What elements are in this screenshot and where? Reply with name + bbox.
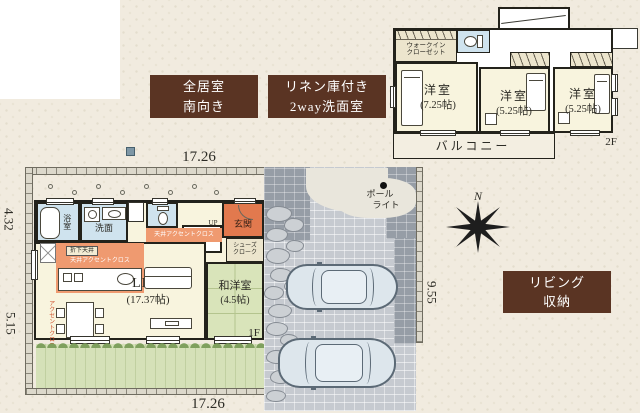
chair-icon bbox=[56, 308, 65, 318]
window-icon bbox=[611, 98, 618, 116]
car-mirror-icon bbox=[317, 308, 322, 312]
stairs-1f-up-label: UP bbox=[204, 220, 222, 228]
badge-south-line2: 南向き bbox=[183, 97, 225, 117]
washroom-label: 洗面 bbox=[88, 224, 120, 234]
car-windshield bbox=[305, 342, 314, 384]
car-mirror-icon bbox=[311, 386, 316, 390]
bed-icon bbox=[401, 70, 423, 126]
car-mirror-icon bbox=[311, 336, 316, 340]
site-fence-bottom bbox=[25, 388, 303, 395]
japanese-room-name: 和洋室 bbox=[212, 280, 258, 292]
hall-ceiling-accent-label: 天井アクセントクロス bbox=[146, 232, 222, 239]
entrance-label: 玄関 bbox=[224, 220, 262, 230]
shoe-closet-label: シューズ クローク bbox=[227, 243, 263, 256]
toilet-2f bbox=[457, 30, 490, 53]
dimension-left-lower: 5.15 bbox=[3, 300, 17, 346]
floor2-label: 2F bbox=[600, 136, 622, 148]
car-rear-window bbox=[365, 268, 374, 306]
washer-drum-icon bbox=[88, 210, 97, 219]
car-roof bbox=[315, 344, 363, 382]
window-icon bbox=[570, 130, 600, 136]
washroom-1f bbox=[80, 202, 128, 242]
top-left-white-area bbox=[0, 0, 120, 99]
legend-square-icon bbox=[126, 147, 135, 156]
window-icon bbox=[611, 74, 618, 92]
dimension-left-upper: 4.32 bbox=[1, 196, 15, 242]
japanese-room-size: (4.5帖) bbox=[214, 295, 256, 306]
toilet-icon bbox=[157, 206, 169, 211]
fridge-space-icon bbox=[40, 243, 56, 263]
closet-hatch-icon bbox=[396, 31, 456, 40]
closet-bedroom2 bbox=[510, 52, 550, 67]
bathroom-label: 浴室 bbox=[62, 208, 71, 236]
site-fence-right bbox=[416, 167, 423, 343]
plant-icon bbox=[48, 184, 53, 189]
walk-in-closet: ウォークイン クローゼット bbox=[395, 30, 457, 62]
bathtub-icon bbox=[40, 207, 60, 239]
dimension-top: 17.26 bbox=[149, 149, 249, 166]
bedroom3-name: 洋室 bbox=[560, 88, 606, 101]
plant-icon bbox=[72, 190, 77, 195]
window-icon bbox=[92, 198, 114, 205]
plant-icon bbox=[144, 184, 149, 189]
plant-icon bbox=[192, 184, 197, 189]
toilet-1f bbox=[146, 202, 178, 228]
stove-icon bbox=[63, 273, 72, 282]
dimension-right: 9.55 bbox=[424, 268, 438, 316]
site-fence-left bbox=[25, 167, 33, 395]
lowered-ceiling-label: 折下天井 bbox=[67, 248, 97, 255]
bedroom3-size: (5.25帖) bbox=[555, 104, 611, 116]
bathroom-1f bbox=[36, 202, 80, 242]
car-windshield bbox=[312, 268, 321, 306]
car-icon bbox=[278, 338, 396, 388]
window-icon bbox=[31, 250, 38, 280]
chair-icon bbox=[95, 324, 104, 334]
shoe-closet-1f: シューズ クローク bbox=[226, 238, 264, 262]
bedroom1-2f bbox=[395, 62, 478, 133]
window-icon bbox=[420, 130, 456, 136]
plant-icon bbox=[214, 190, 219, 195]
walk-in-closet-label: ウォークイン クローゼット bbox=[396, 42, 456, 56]
entrance-door-icon bbox=[234, 198, 256, 204]
garden-area bbox=[36, 344, 264, 388]
chair-icon bbox=[56, 324, 65, 334]
toilet-bowl-icon bbox=[158, 212, 168, 225]
hall-ceiling-accent: 天井アクセントクロス bbox=[146, 228, 222, 242]
ldk-size: (17.37帖) bbox=[112, 294, 184, 306]
sink-bowl-icon bbox=[108, 210, 121, 218]
balcony-label: バルコニー bbox=[425, 140, 521, 153]
toilet-bowl-icon bbox=[464, 36, 477, 47]
tv-board-icon bbox=[150, 318, 192, 329]
lowered-ceiling-tag: 折下天井 bbox=[66, 246, 98, 256]
car-icon bbox=[286, 264, 398, 310]
kitchen-ceiling-accent-label: 天井アクセントクロス bbox=[58, 258, 142, 265]
stairs-2f-icon bbox=[498, 7, 570, 30]
plant-icon bbox=[120, 190, 125, 195]
pole-light-line2: ライト bbox=[368, 201, 404, 211]
stove-icon bbox=[74, 273, 83, 282]
badge-living-storage: リビング 収納 bbox=[503, 271, 611, 313]
site-fence-top bbox=[25, 167, 265, 175]
pole-light-line1: ポール bbox=[362, 190, 398, 200]
tv-icon bbox=[165, 321, 179, 326]
bedroom1-name: 洋室 bbox=[415, 84, 461, 97]
badge-living-line2: 収納 bbox=[543, 292, 571, 312]
car-mirror-icon bbox=[317, 262, 322, 266]
plant-icon bbox=[96, 184, 101, 189]
toilet-icon bbox=[477, 35, 483, 48]
floorplan-canvas: 全居室 南向き リネン庫付き 2way洗面室 リビング 収納 17.26 4.3… bbox=[0, 0, 640, 413]
badge-living-line1: リビング bbox=[529, 273, 585, 293]
badge-linen-line2: 2way洗面室 bbox=[290, 97, 364, 117]
window-icon bbox=[152, 198, 168, 205]
dimension-bottom: 17.26 bbox=[158, 396, 258, 413]
window-icon bbox=[390, 86, 396, 108]
shoe-closet-line2: クローク bbox=[227, 250, 263, 257]
badge-south-facing: 全居室 南向き bbox=[150, 75, 258, 118]
plant-icon bbox=[168, 190, 173, 195]
car-roof bbox=[321, 270, 366, 304]
pole-light-icon bbox=[380, 182, 387, 189]
window-icon bbox=[46, 198, 74, 205]
shoe-closet-line1: シューズ bbox=[227, 243, 263, 250]
badge-linen-washroom: リネン庫付き 2way洗面室 bbox=[268, 75, 386, 118]
badge-linen-line1: リネン庫付き bbox=[285, 77, 369, 97]
bedroom2-size: (5.25帖) bbox=[485, 106, 543, 118]
bedroom2-name: 洋室 bbox=[491, 90, 537, 103]
window-icon bbox=[500, 130, 530, 136]
compass-icon bbox=[446, 201, 510, 253]
wic-line2: クローゼット bbox=[396, 49, 456, 56]
dining-table-icon bbox=[66, 302, 94, 338]
linen-closet bbox=[128, 202, 144, 222]
badge-south-line1: 全居室 bbox=[183, 77, 225, 97]
closet-bedroom3 bbox=[570, 52, 613, 67]
car-rear-window bbox=[362, 342, 371, 384]
chair-icon bbox=[95, 308, 104, 318]
bedroom1-size: (7.25帖) bbox=[407, 100, 469, 112]
sofa-icon bbox=[144, 267, 192, 289]
